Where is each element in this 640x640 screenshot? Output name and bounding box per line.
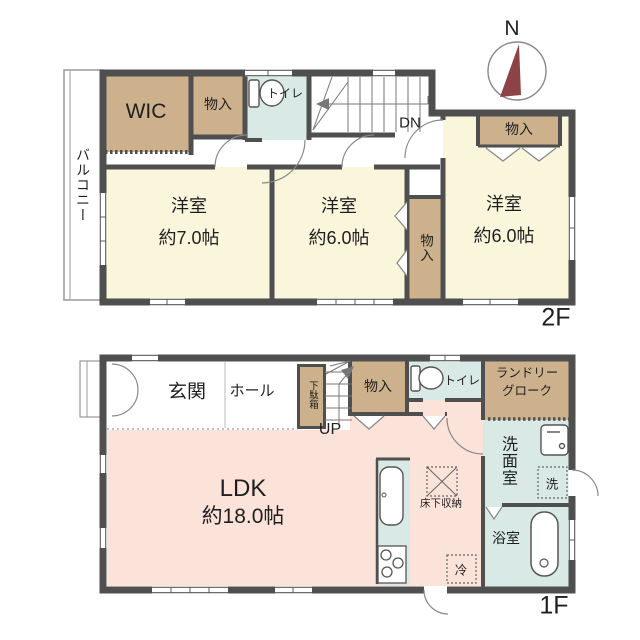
stairs-dn-label: DN (399, 115, 421, 132)
underfloor-storage-x (427, 467, 457, 496)
stove-icon (378, 546, 406, 583)
shoe-cabinet-label: 下駄箱 (305, 381, 319, 410)
laundry-closet-label: ランドリーグローク (496, 364, 559, 400)
toilet-1f-label: トイレ (444, 372, 480, 389)
north-compass (488, 42, 546, 100)
entrance-label: 玄関 (168, 377, 206, 404)
bedroom-mid-label: 洋室約6.0帖 (308, 190, 369, 254)
bathtub-icon (531, 512, 558, 576)
balcony-label: バルコニー (73, 148, 93, 223)
floor1-label: 1F (539, 592, 568, 621)
floor-plan: バルコニー WIC 物入 トイレ DN 洋室約7.0帖 洋室約6.0帖 物入 洋… (0, 0, 640, 640)
toilet-1f-icon (411, 366, 443, 391)
closet-2f-top-label: 物入 (204, 94, 232, 114)
kitchen-sink-icon (380, 467, 403, 525)
toilet-2f-label: トイレ (267, 85, 303, 102)
north-label: N (504, 17, 519, 41)
closet-1f-label: 物入 (364, 376, 392, 396)
closet-2f-east-label: 物入 (505, 119, 533, 139)
bedroom-west-label: 洋室約7.0帖 (158, 190, 219, 254)
floor2-label: 2F (541, 304, 570, 333)
washbasin-icon (541, 425, 568, 455)
stairs-up-label: UP (319, 421, 341, 439)
underfloor-storage-label: 床下収納 (420, 496, 462, 511)
north-needle (500, 44, 521, 97)
hall-label: ホール (229, 380, 274, 401)
ldk-label: LDK 約18.0帖 (202, 475, 285, 531)
closet-2f-mid-label: 物入 (415, 234, 435, 263)
washroom-label: 洗面室 (495, 436, 519, 487)
fridge-label: 冷 (455, 560, 468, 579)
bathroom-label: 浴室 (492, 528, 520, 548)
washer-label: 洗 (546, 474, 559, 493)
wic-label: WIC (126, 100, 167, 124)
bedroom-east-label: 洋室約6.0帖 (473, 188, 534, 252)
